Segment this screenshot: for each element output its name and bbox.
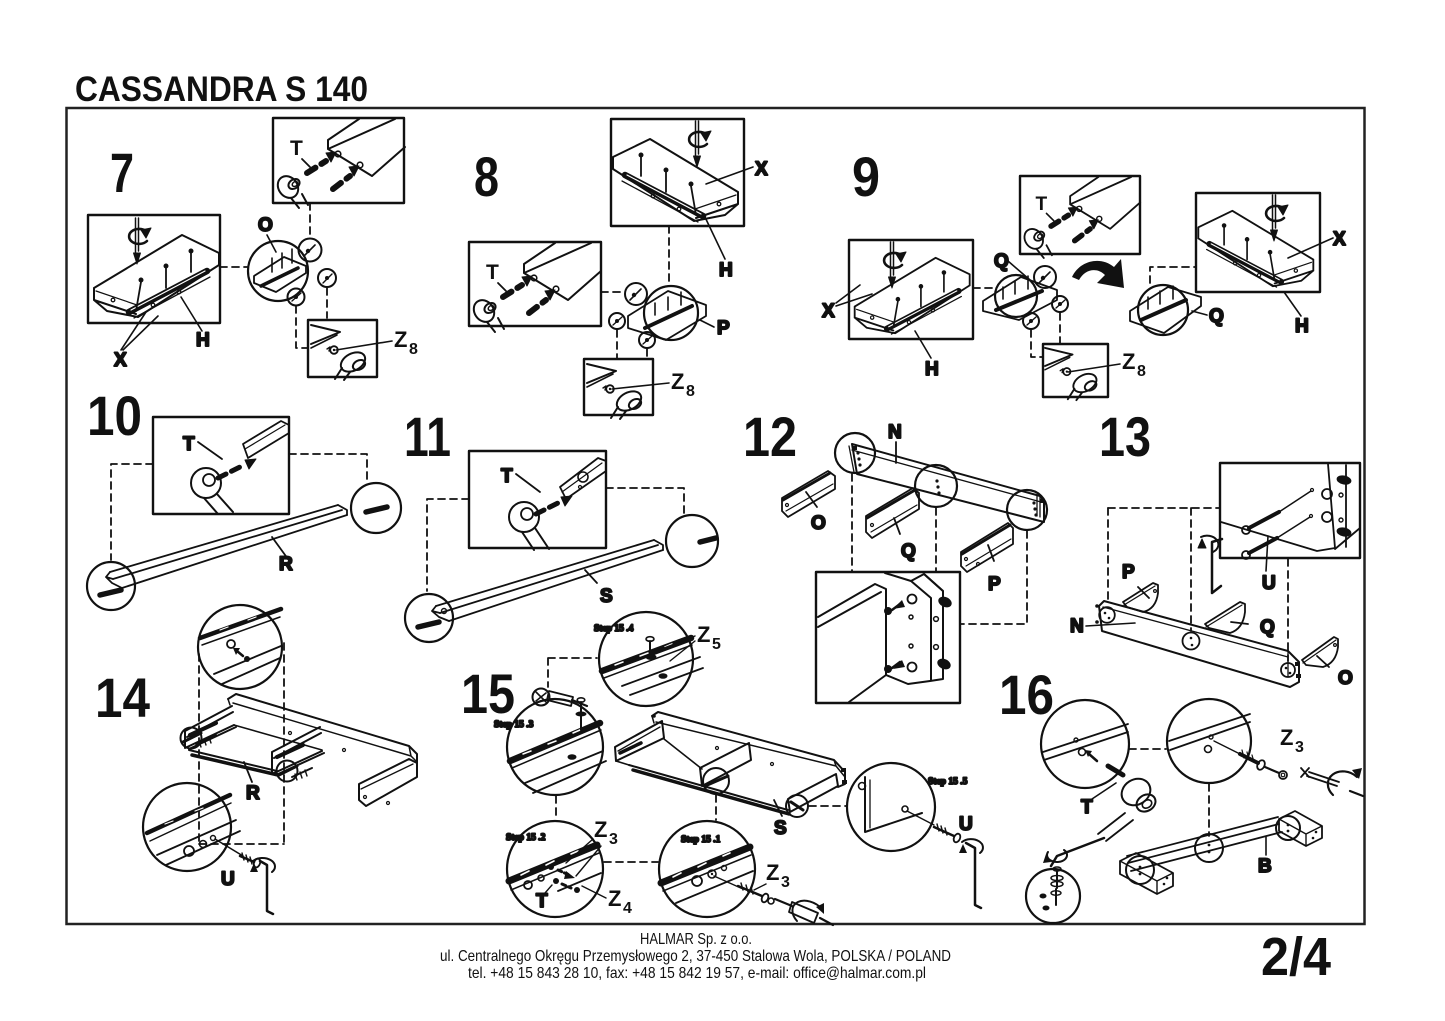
svg-text:P: P: [988, 574, 1001, 595]
svg-text:P: P: [717, 318, 730, 339]
svg-text:Z: Z: [671, 369, 684, 394]
svg-text:Step 15 .4: Step 15 .4: [594, 624, 634, 634]
svg-text:Z: Z: [1122, 349, 1135, 374]
svg-text:H: H: [196, 330, 210, 351]
svg-text:12: 12: [743, 405, 797, 468]
svg-text:Q: Q: [1209, 306, 1224, 327]
svg-text:Z: Z: [766, 860, 779, 885]
svg-text:S: S: [774, 818, 787, 839]
svg-text:X: X: [755, 159, 768, 180]
svg-text:9: 9: [852, 145, 880, 208]
svg-text:8: 8: [1137, 363, 1146, 380]
svg-text:Z: Z: [697, 622, 710, 647]
svg-text:H: H: [719, 260, 733, 281]
svg-text:X: X: [822, 301, 835, 322]
svg-text:O: O: [1338, 668, 1353, 689]
svg-text:Q: Q: [1260, 617, 1275, 638]
svg-text:16: 16: [999, 663, 1054, 726]
svg-text:X: X: [1333, 229, 1346, 250]
svg-text:8: 8: [686, 383, 695, 400]
svg-text:Z: Z: [594, 817, 607, 842]
svg-text:Step 15 .3: Step 15 .3: [494, 720, 534, 730]
svg-text:4: 4: [623, 900, 632, 917]
svg-text:3: 3: [1295, 739, 1304, 756]
svg-text:N: N: [1070, 616, 1084, 637]
svg-text:Q: Q: [901, 541, 916, 562]
svg-text:14: 14: [95, 666, 150, 729]
svg-text:tel. +48 15 843 28 10, fax: +4: tel. +48 15 843 28 10, fax: +48 15 842 1…: [468, 965, 926, 982]
svg-text:Z: Z: [608, 886, 621, 911]
svg-text:HALMAR Sp. z o.o.: HALMAR Sp. z o.o.: [640, 931, 752, 948]
svg-text:Step 15 .2: Step 15 .2: [506, 833, 546, 843]
svg-text:13: 13: [1099, 405, 1151, 468]
svg-text:7: 7: [110, 141, 134, 204]
svg-text:B: B: [1258, 856, 1272, 877]
svg-text:N: N: [888, 422, 902, 443]
svg-text:S: S: [600, 586, 613, 607]
svg-text:U: U: [959, 814, 973, 835]
svg-text:T: T: [501, 466, 513, 487]
svg-text:H: H: [1295, 316, 1309, 337]
svg-text:3: 3: [609, 831, 618, 848]
svg-text:10: 10: [87, 384, 142, 447]
svg-text:Step 15 .1: Step 15 .1: [681, 835, 721, 845]
svg-text:R: R: [246, 783, 260, 804]
svg-text:Q: Q: [994, 251, 1009, 272]
svg-text:X: X: [114, 350, 127, 371]
svg-text:8: 8: [409, 341, 418, 358]
svg-text:O: O: [811, 513, 826, 534]
svg-text:T: T: [1081, 797, 1093, 818]
svg-text:ul. Centralnego Okręgu Przemys: ul. Centralnego Okręgu Przemysłowego 2, …: [440, 948, 951, 965]
svg-text:5: 5: [712, 636, 721, 653]
svg-text:11: 11: [404, 405, 451, 468]
svg-text:T: T: [536, 891, 548, 912]
svg-text:H: H: [925, 359, 939, 380]
svg-text:Z: Z: [1280, 725, 1293, 750]
svg-text:P: P: [1122, 562, 1135, 583]
svg-text:U: U: [221, 869, 235, 890]
svg-text:U: U: [1262, 573, 1276, 594]
svg-text:T: T: [183, 434, 195, 455]
svg-text:15: 15: [461, 662, 515, 725]
svg-text:CASSANDRA S 140: CASSANDRA S 140: [75, 70, 368, 109]
svg-text:8: 8: [474, 145, 499, 208]
svg-text:O: O: [258, 215, 273, 236]
svg-text:3: 3: [781, 874, 790, 891]
svg-text:2/4: 2/4: [1261, 927, 1331, 987]
svg-text:Z: Z: [394, 327, 407, 352]
svg-text:Step 15 .5: Step 15 .5: [928, 777, 968, 787]
svg-text:R: R: [279, 554, 293, 575]
